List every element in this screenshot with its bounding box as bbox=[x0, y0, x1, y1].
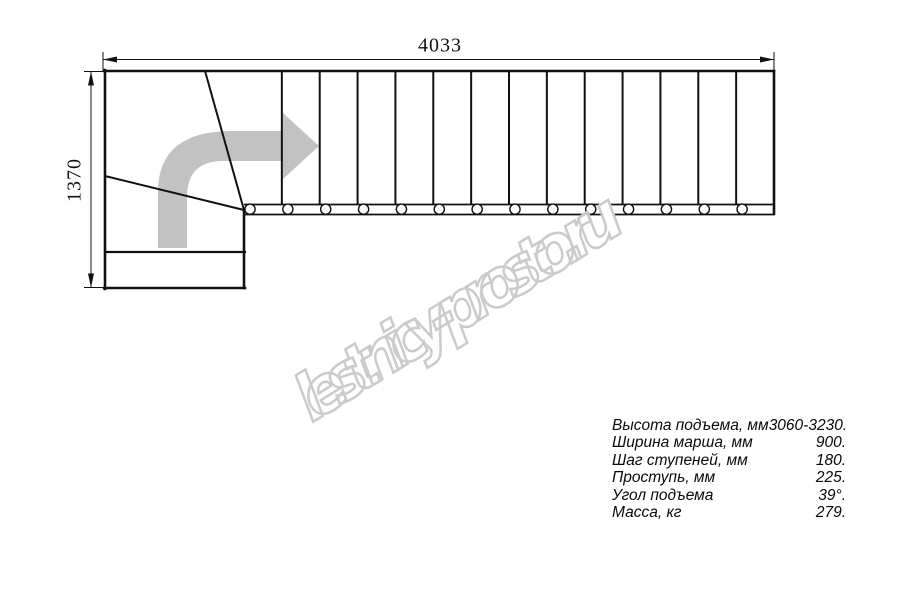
stair-outline bbox=[104, 70, 774, 289]
bolt-circle bbox=[737, 204, 747, 214]
spec-row: Угол подъема39°. bbox=[612, 487, 846, 504]
height-dimension bbox=[84, 72, 104, 288]
spec-row: Высота подъема, мм3060-3230. bbox=[612, 417, 846, 434]
spec-label: Масса, кг bbox=[612, 504, 681, 521]
spec-row: Ширина марша, мм900. bbox=[612, 434, 846, 451]
height-dimension-label: 1370 bbox=[64, 158, 87, 202]
spec-value: 3060-3230. bbox=[769, 417, 847, 434]
spec-label: Шаг ступеней, мм bbox=[612, 452, 748, 469]
spec-row: Проступь, мм225. bbox=[612, 469, 846, 486]
bolt-circle bbox=[245, 204, 255, 214]
spec-row: Шаг ступеней, мм180. bbox=[612, 452, 846, 469]
bolt-circle bbox=[510, 204, 520, 214]
bolt-circle bbox=[472, 204, 482, 214]
stair-drawing-page: 4033 1370 Высота подъема, мм3060-3230.Ши… bbox=[0, 0, 900, 600]
flight-steps bbox=[282, 71, 736, 205]
bolt-circle bbox=[358, 204, 368, 214]
spec-label: Ширина марша, мм bbox=[612, 434, 753, 451]
bolt-circle bbox=[321, 204, 331, 214]
spec-label: Высота подъема, мм bbox=[612, 417, 769, 434]
bolt-circle bbox=[283, 204, 293, 214]
bolt-circle bbox=[623, 204, 633, 214]
bolt-circle bbox=[396, 204, 406, 214]
spec-value: 180. bbox=[816, 452, 846, 469]
bolt-circle bbox=[699, 204, 709, 214]
spec-row: Масса, кг279. bbox=[612, 504, 846, 521]
spec-value: 225. bbox=[816, 469, 846, 486]
spec-value: 900. bbox=[816, 434, 846, 451]
bolt-circle bbox=[661, 204, 671, 214]
spec-value: 279. bbox=[816, 504, 846, 521]
spec-label: Угол подъема bbox=[612, 487, 713, 504]
bolt-circle bbox=[434, 204, 444, 214]
mounting-bolts bbox=[245, 204, 747, 214]
spec-value: 39°. bbox=[818, 487, 846, 504]
spec-label: Проступь, мм bbox=[612, 469, 715, 486]
turn-right-arrow-icon bbox=[158, 113, 319, 248]
spec-table: Высота подъема, мм3060-3230.Ширина марша… bbox=[612, 417, 846, 521]
width-dimension-label: 4033 bbox=[418, 35, 462, 58]
